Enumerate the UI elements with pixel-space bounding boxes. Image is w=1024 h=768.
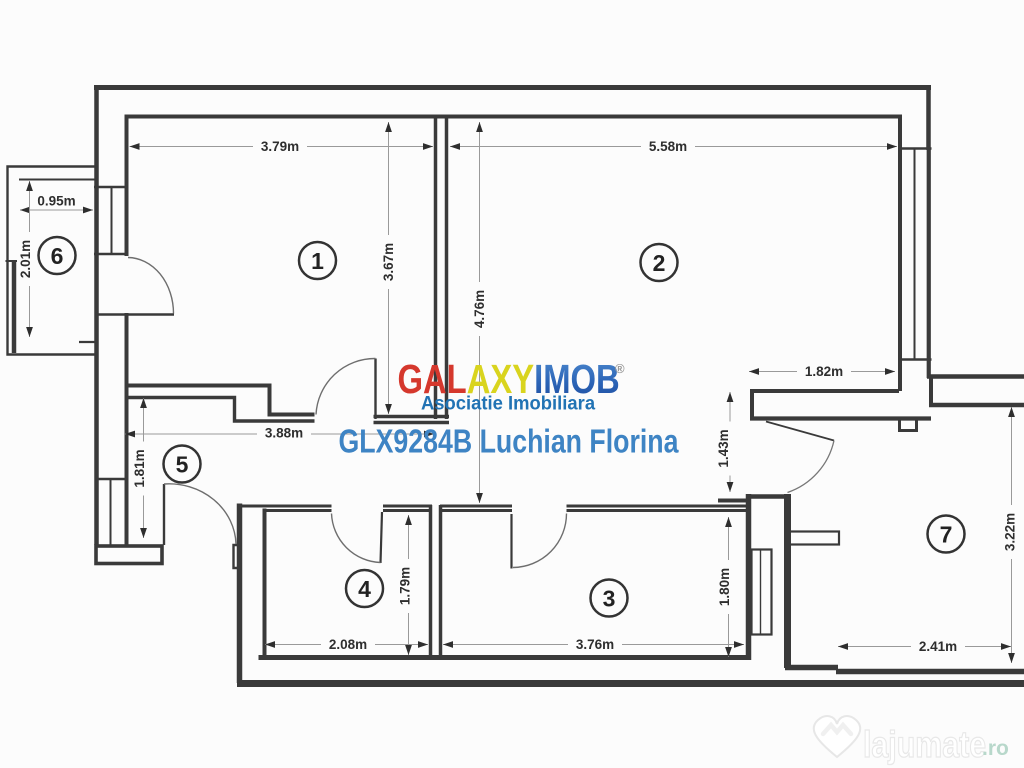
- svg-text:0.95m: 0.95m: [37, 194, 75, 209]
- svg-text:2.41m: 2.41m: [919, 639, 957, 654]
- svg-text:1.43m: 1.43m: [716, 429, 731, 467]
- svg-text:1.80m: 1.80m: [717, 568, 732, 606]
- svg-text:GLX9284B Luchian Florina: GLX9284B Luchian Florina: [339, 424, 679, 460]
- svg-text:1.82m: 1.82m: [805, 364, 843, 379]
- svg-text:4: 4: [358, 576, 371, 602]
- svg-text:®: ®: [615, 361, 625, 376]
- svg-text:1.81m: 1.81m: [132, 449, 147, 487]
- svg-text:.ro: .ro: [982, 737, 1009, 760]
- svg-text:6: 6: [51, 243, 64, 269]
- svg-text:3.79m: 3.79m: [261, 139, 299, 154]
- svg-text:3.22m: 3.22m: [1003, 513, 1018, 551]
- svg-text:2: 2: [653, 250, 666, 276]
- svg-text:1.79m: 1.79m: [398, 567, 413, 605]
- svg-text:3.88m: 3.88m: [265, 426, 303, 441]
- svg-text:3.76m: 3.76m: [576, 637, 614, 652]
- svg-text:7: 7: [940, 521, 953, 547]
- svg-text:Asociatie Imobiliara: Asociatie Imobiliara: [421, 393, 596, 415]
- svg-text:5: 5: [176, 451, 189, 477]
- svg-text:3.67m: 3.67m: [381, 243, 396, 281]
- svg-text:lajumate: lajumate: [863, 724, 986, 766]
- svg-text:2.08m: 2.08m: [329, 637, 367, 652]
- svg-text:2.01m: 2.01m: [18, 240, 33, 278]
- svg-text:1: 1: [311, 248, 324, 274]
- svg-text:4.76m: 4.76m: [472, 290, 487, 328]
- svg-text:3: 3: [603, 585, 616, 611]
- svg-text:5.58m: 5.58m: [649, 139, 687, 154]
